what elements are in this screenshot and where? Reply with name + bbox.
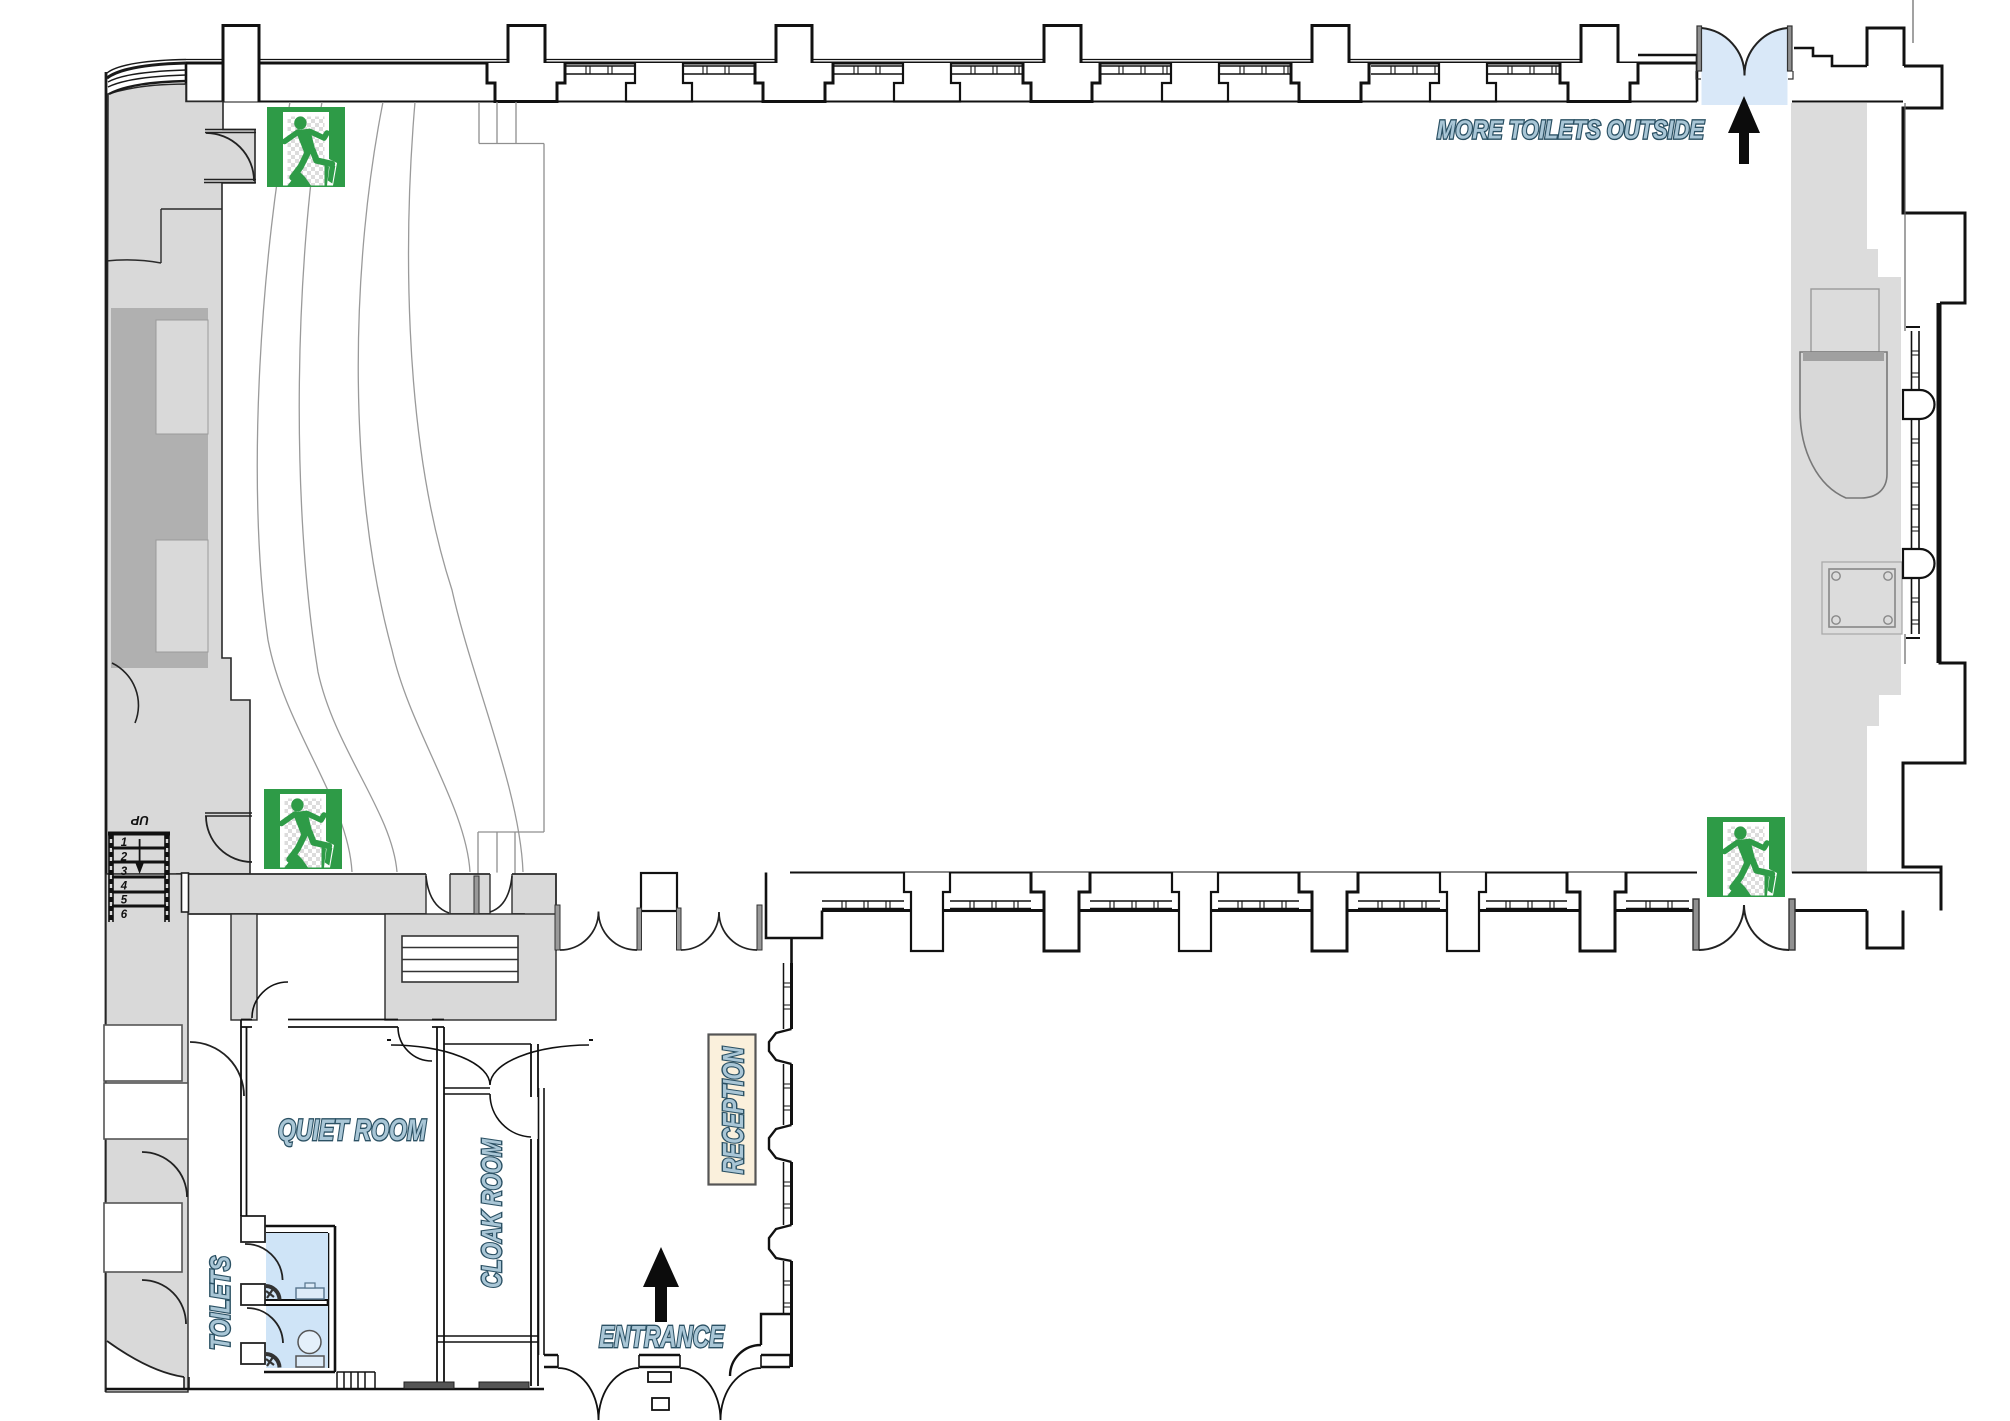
svg-text:3: 3 <box>121 866 128 878</box>
svg-text:4: 4 <box>120 881 128 893</box>
svg-text:CLOAK ROOM: CLOAK ROOM <box>476 1138 507 1288</box>
svg-text:UP: UP <box>131 813 149 828</box>
svg-text:1: 1 <box>121 837 127 849</box>
svg-text:ENTRANCE: ENTRANCE <box>599 1319 725 1354</box>
svg-text:MORE TOILETS OUTSIDE: MORE TOILETS OUTSIDE <box>1437 115 1705 145</box>
svg-text:RECEPTION: RECEPTION <box>718 1046 750 1174</box>
svg-text:QUIET ROOM: QUIET ROOM <box>278 1114 427 1147</box>
svg-text:5: 5 <box>121 895 128 907</box>
svg-text:2: 2 <box>120 852 128 864</box>
svg-text:TOILETS: TOILETS <box>205 1256 236 1350</box>
svg-text:6: 6 <box>121 909 128 921</box>
